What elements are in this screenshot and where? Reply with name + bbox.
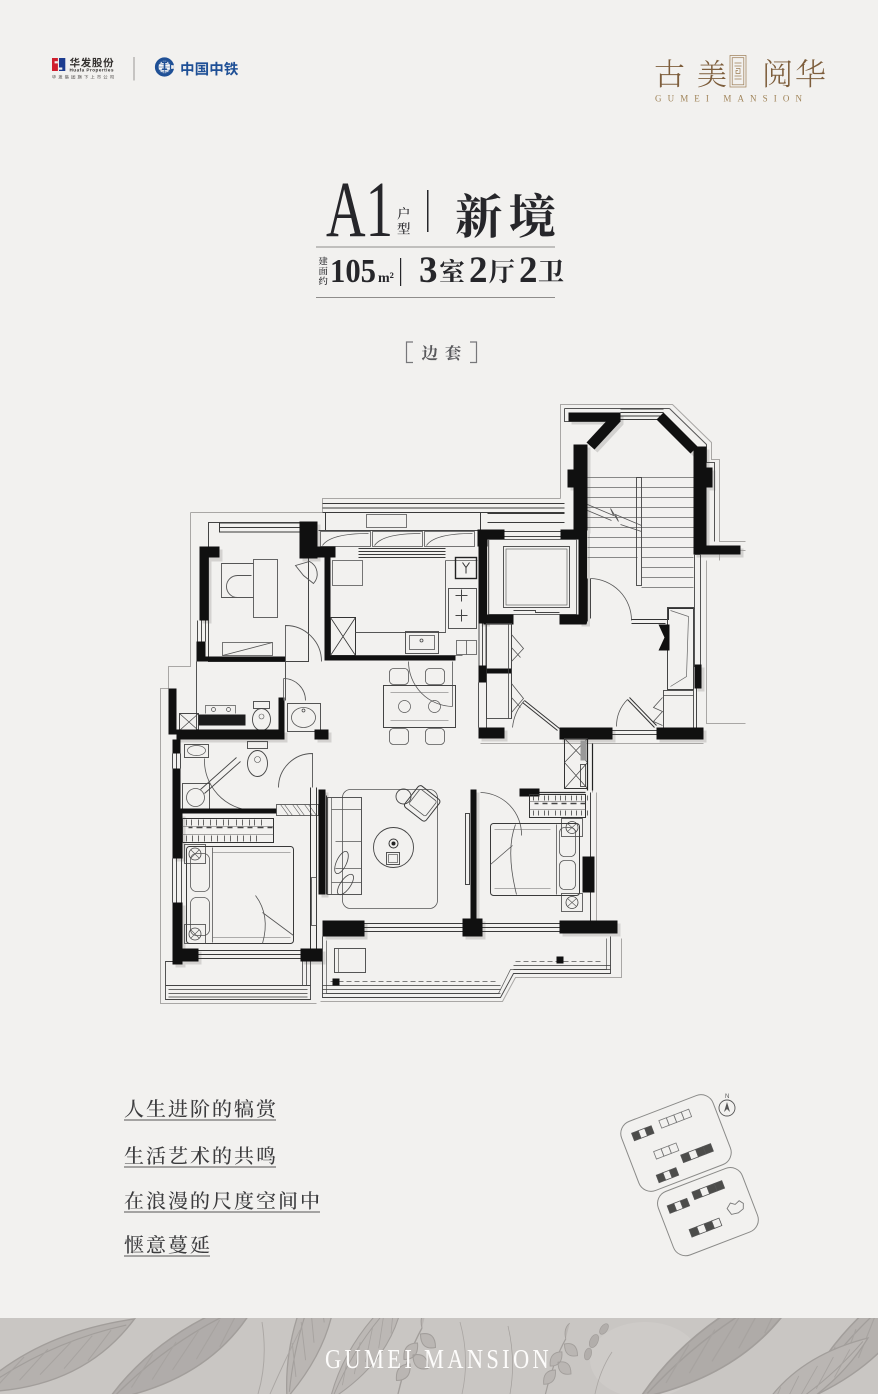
svg-text:2: 2 (519, 250, 538, 291)
svg-text:GUMEI MANSION: GUMEI MANSION (655, 94, 808, 104)
svg-text:Huafa Properties: Huafa Properties (70, 67, 114, 72)
svg-text:3: 3 (419, 250, 438, 291)
svg-text:105: 105 (330, 253, 376, 290)
svg-text:N: N (725, 1094, 729, 1100)
svg-text:m²: m² (378, 271, 394, 286)
svg-text:GUMEI MANSION: GUMEI MANSION (325, 1344, 552, 1374)
svg-text:2: 2 (469, 250, 488, 291)
svg-text:A1: A1 (326, 167, 393, 254)
